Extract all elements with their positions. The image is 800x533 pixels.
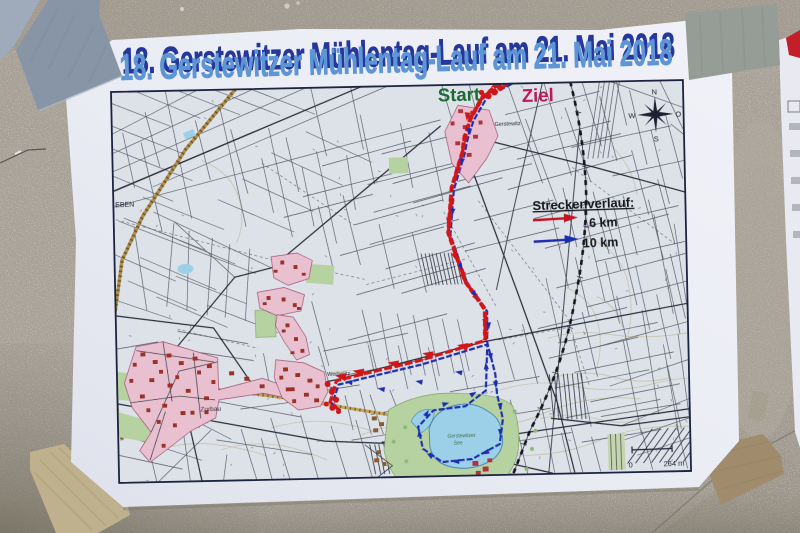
svg-text:Gerstewitzer: Gerstewitzer: [447, 433, 476, 440]
svg-text:N: N: [651, 87, 657, 96]
svg-text:6 km: 6 km: [589, 215, 618, 230]
svg-text:264 m: 264 m: [663, 459, 684, 469]
svg-text:O: O: [675, 109, 681, 118]
svg-text:Ziel: Ziel: [522, 84, 554, 106]
svg-text:Start: Start: [438, 83, 481, 105]
svg-text:EBEN: EBEN: [115, 202, 134, 210]
svg-text:W: W: [628, 111, 636, 120]
svg-text:S: S: [654, 134, 659, 143]
svg-text:See: See: [454, 440, 463, 446]
svg-text:Gerstewitz: Gerstewitz: [495, 121, 521, 128]
svg-text:10 km: 10 km: [583, 235, 619, 250]
svg-text:Zorbau: Zorbau: [200, 406, 221, 414]
